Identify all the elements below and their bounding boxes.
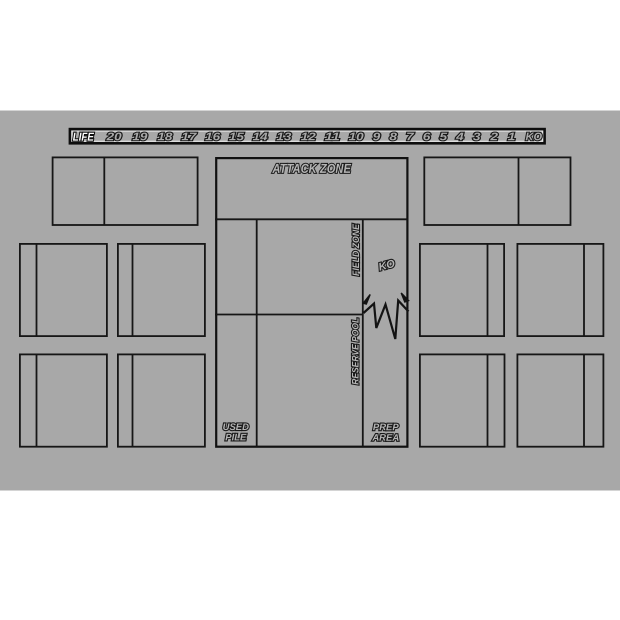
svg-text:9: 9 bbox=[373, 131, 382, 143]
svg-text:FIELD ZONE: FIELD ZONE bbox=[351, 223, 361, 276]
svg-text:PREP: PREP bbox=[373, 422, 400, 433]
svg-text:7: 7 bbox=[406, 131, 415, 143]
svg-text:1: 1 bbox=[508, 131, 516, 143]
svg-text:18: 18 bbox=[157, 131, 173, 143]
svg-text:10: 10 bbox=[349, 131, 365, 143]
svg-text:19: 19 bbox=[132, 131, 148, 143]
svg-text:RESERVE POOL: RESERVE POOL bbox=[351, 318, 361, 385]
svg-text:LIFE: LIFE bbox=[73, 132, 94, 144]
svg-text:12: 12 bbox=[301, 131, 316, 143]
svg-text:PILE: PILE bbox=[225, 432, 247, 443]
svg-text:2: 2 bbox=[489, 131, 498, 143]
svg-text:15: 15 bbox=[229, 131, 245, 143]
svg-text:3: 3 bbox=[473, 131, 481, 143]
svg-text:20: 20 bbox=[105, 131, 122, 143]
svg-text:AREA: AREA bbox=[371, 433, 399, 444]
svg-text:6: 6 bbox=[423, 131, 432, 143]
svg-text:16: 16 bbox=[205, 131, 221, 143]
svg-text:ATTACK ZONE: ATTACK ZONE bbox=[272, 161, 352, 176]
svg-text:8: 8 bbox=[389, 131, 398, 143]
svg-text:17: 17 bbox=[181, 131, 197, 143]
svg-text:KO: KO bbox=[526, 131, 543, 143]
svg-text:4: 4 bbox=[455, 131, 464, 143]
svg-text:11: 11 bbox=[325, 131, 340, 143]
svg-text:13: 13 bbox=[276, 131, 291, 143]
svg-text:USED: USED bbox=[223, 422, 250, 433]
svg-text:5: 5 bbox=[439, 131, 448, 143]
svg-text:14: 14 bbox=[253, 131, 268, 143]
